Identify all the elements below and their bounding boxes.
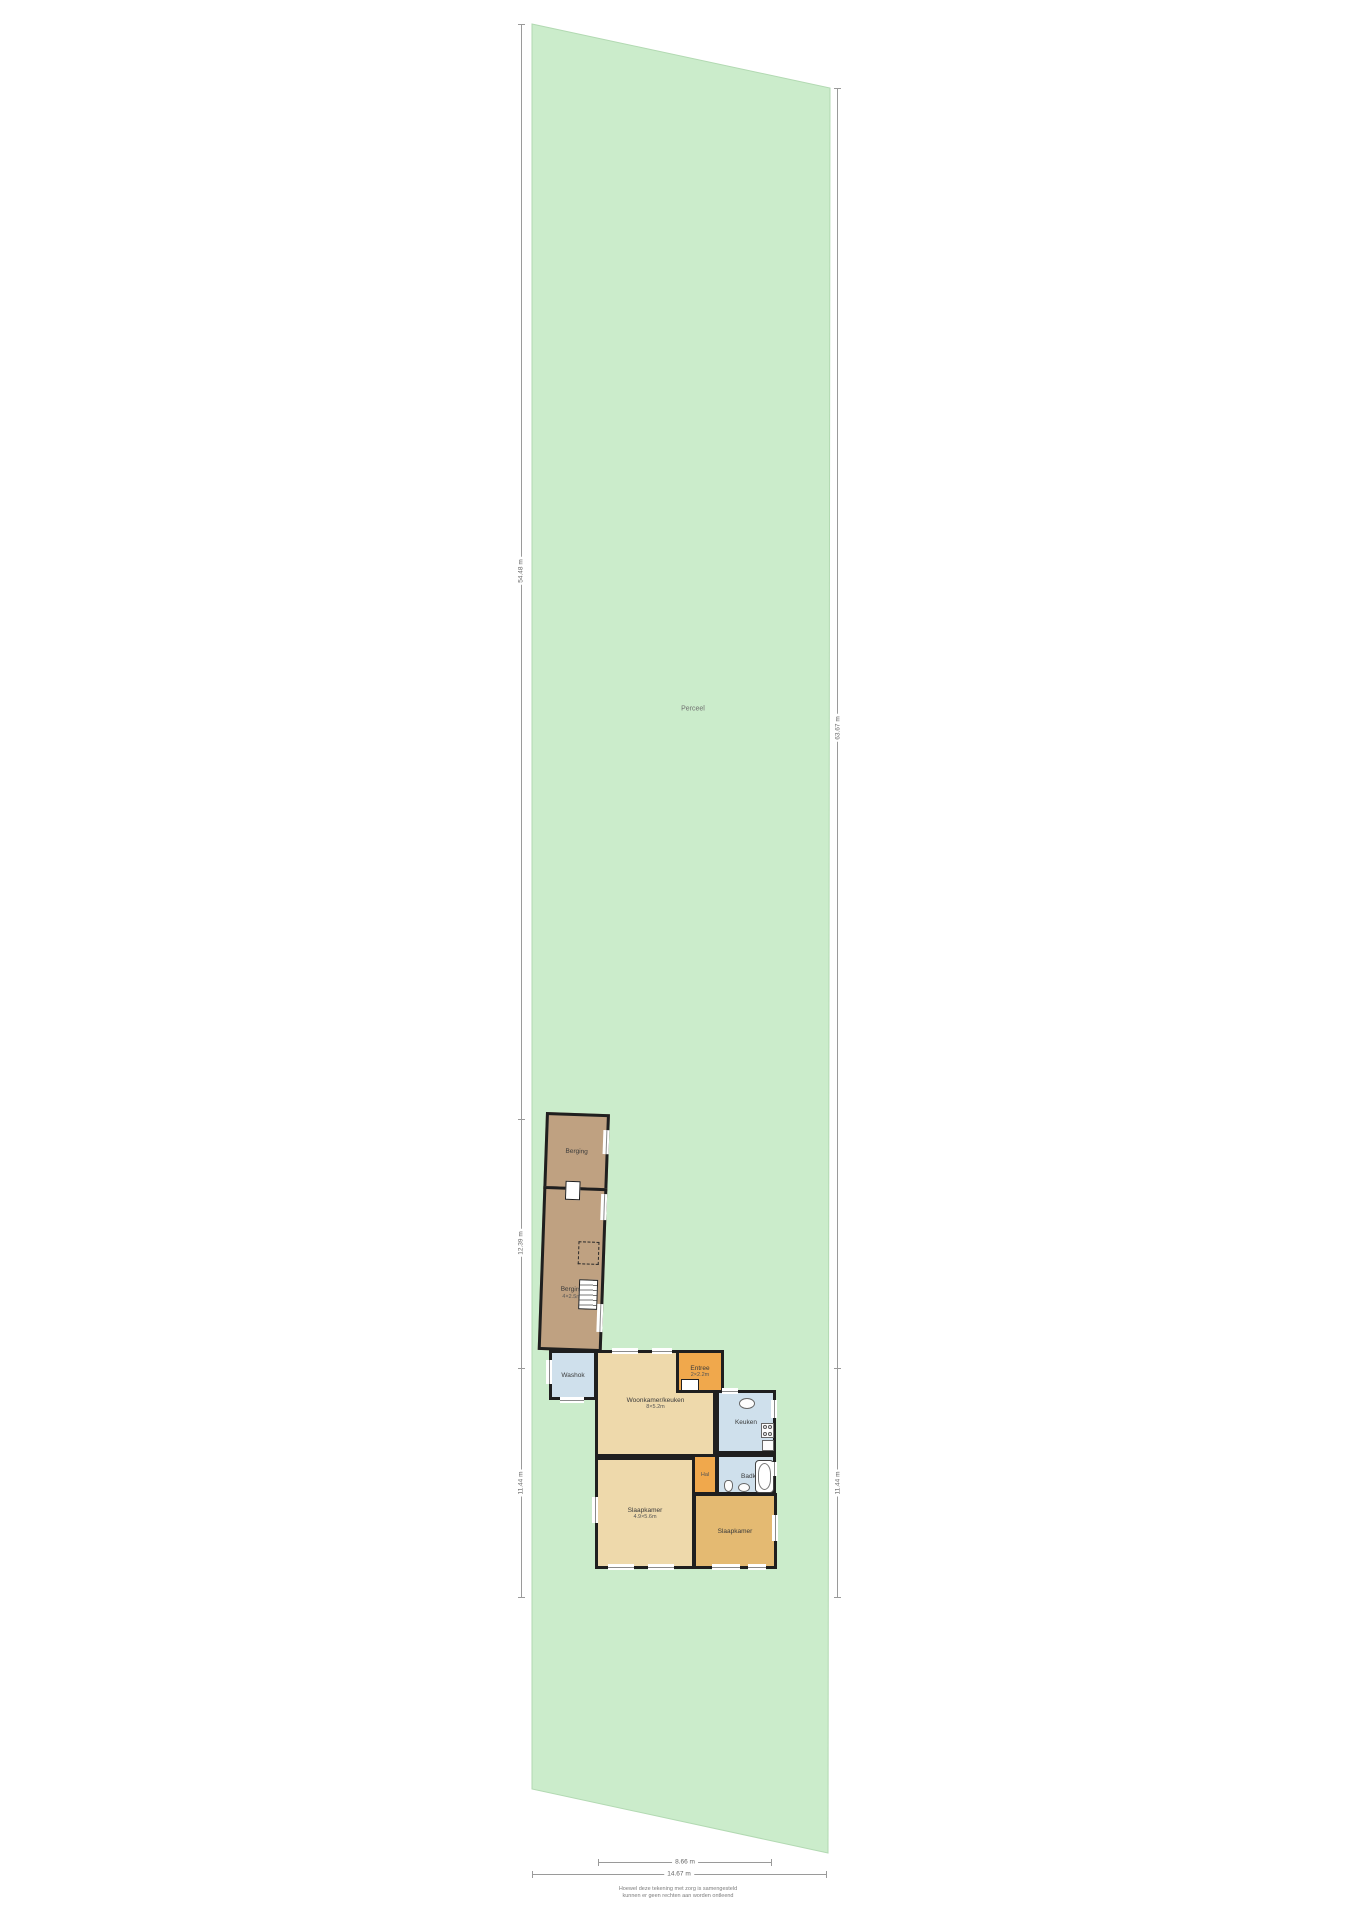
room-label: Entree: [690, 1365, 709, 1372]
dimension-label: 54.48 m: [518, 557, 525, 585]
room-label: Washok: [561, 1372, 584, 1379]
room-size-label: 2×2.2m: [691, 1372, 710, 1378]
dimension-line-left: [521, 24, 522, 1598]
loft-opening-dashed: [578, 1241, 600, 1265]
room-berging-top: Berging: [543, 1112, 610, 1191]
room-size-label: 8×5.2m: [646, 1404, 665, 1410]
window: [612, 1348, 638, 1354]
room-washok: Washok: [549, 1350, 597, 1400]
kitchen-sink: [739, 1398, 755, 1409]
room-entree: Entree 2×2.2m: [676, 1350, 724, 1393]
room-slaapkamer-rechts: Slaapkamer: [693, 1493, 777, 1569]
dimension-tick: [771, 1859, 772, 1866]
window: [771, 1462, 777, 1476]
dimension-label: 63.67 m: [835, 714, 842, 742]
room-badkamer: Badkamer: [716, 1454, 776, 1495]
room-hal: Hal: [692, 1454, 718, 1495]
dimension-tick: [598, 1859, 599, 1866]
room-keuken: Keuken: [716, 1390, 776, 1454]
window: [648, 1564, 674, 1570]
window: [596, 1304, 603, 1332]
room-slaapkamer-links: Slaapkamer 4.9×5.6m: [595, 1457, 695, 1569]
dimension-label: 11.44 m: [835, 1469, 842, 1496]
dimension-tick: [834, 88, 841, 89]
room-label: Hal: [701, 1472, 709, 1478]
plot-polygon: [532, 24, 830, 1853]
room-label: Keuken: [735, 1419, 757, 1426]
window: [592, 1497, 598, 1523]
disclaimer-line-1: Hoewel deze tekening met zorg is samenge…: [619, 1886, 737, 1893]
chimney: [565, 1181, 581, 1201]
window: [546, 1360, 552, 1384]
dimension-line-right: [837, 88, 838, 1598]
window: [712, 1564, 740, 1570]
room-label: Woonkamer/keuken: [627, 1397, 685, 1404]
entree-closet: [681, 1379, 699, 1391]
barn-block: Berging Berging 4×2.5m: [538, 1112, 610, 1352]
dimension-tick: [518, 24, 525, 25]
dimension-tick: [518, 1597, 525, 1598]
window: [603, 1130, 610, 1154]
window: [722, 1388, 738, 1394]
dimension-tick: [518, 1368, 525, 1369]
staircase: [578, 1279, 598, 1310]
dimension-tick: [834, 1368, 841, 1369]
disclaimer-line-2: kunnen er geen rechten aan worden ontlee…: [622, 1893, 733, 1900]
dimension-label: 8.66 m: [672, 1859, 698, 1866]
dimension-tick: [532, 1871, 533, 1878]
dimension-label: 14.67 m: [664, 1871, 694, 1878]
window: [608, 1564, 634, 1570]
situatie-drawing: Perceel 54.48 m 12.39 m 11.44 m 63.67 m …: [0, 0, 1358, 1920]
window: [600, 1194, 607, 1220]
plot-area-label: Perceel: [681, 706, 705, 713]
window: [560, 1397, 584, 1403]
plot-parcel-shape: [0, 0, 1358, 1920]
stove: [761, 1423, 774, 1438]
oven: [762, 1440, 774, 1451]
room-label: Berging: [565, 1148, 588, 1156]
washbasin: [738, 1483, 750, 1492]
dimension-tick: [518, 1119, 525, 1120]
dimension-label: 11.44 m: [518, 1469, 525, 1496]
window: [772, 1515, 778, 1541]
dimension-tick: [826, 1871, 827, 1878]
toilet: [724, 1480, 733, 1492]
window: [748, 1564, 766, 1570]
room-label: Slaapkamer: [718, 1528, 753, 1535]
window: [652, 1348, 672, 1354]
room-size-label: 4.9×5.6m: [633, 1514, 656, 1520]
room-label: Slaapkamer: [628, 1507, 663, 1514]
window: [771, 1400, 777, 1418]
dimension-label: 12.39 m: [518, 1229, 525, 1257]
dimension-tick: [834, 1597, 841, 1598]
